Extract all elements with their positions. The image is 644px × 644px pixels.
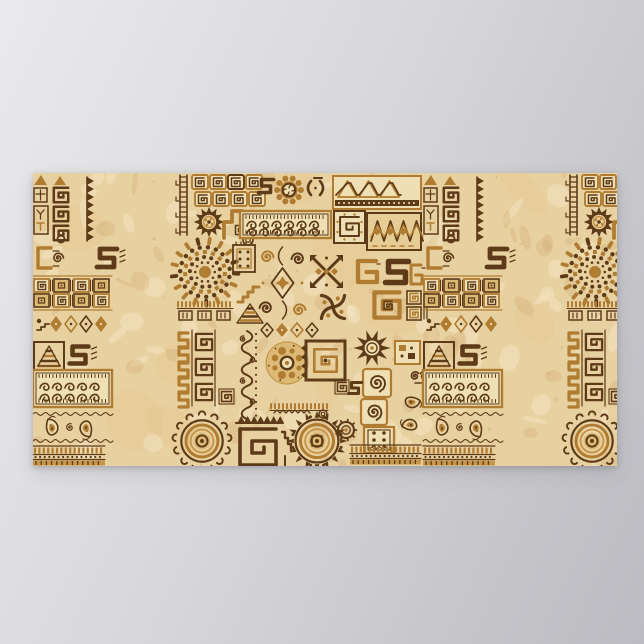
- motif-spiral-square: [361, 399, 387, 425]
- product-mockup-background: [0, 0, 644, 644]
- motif-spiral-square: [363, 369, 391, 397]
- pattern-svg: [33, 173, 617, 466]
- poster: [33, 173, 617, 466]
- motif-dot-square: [395, 341, 420, 364]
- motif-wave-band: [33, 370, 112, 407]
- motif-wave-band: [240, 211, 331, 238]
- motif-wave-band: [423, 370, 502, 407]
- motif-kilim-panel: [367, 213, 423, 250]
- motif-triangle-band: [333, 176, 421, 209]
- motif-labyrinth-square: [334, 211, 365, 243]
